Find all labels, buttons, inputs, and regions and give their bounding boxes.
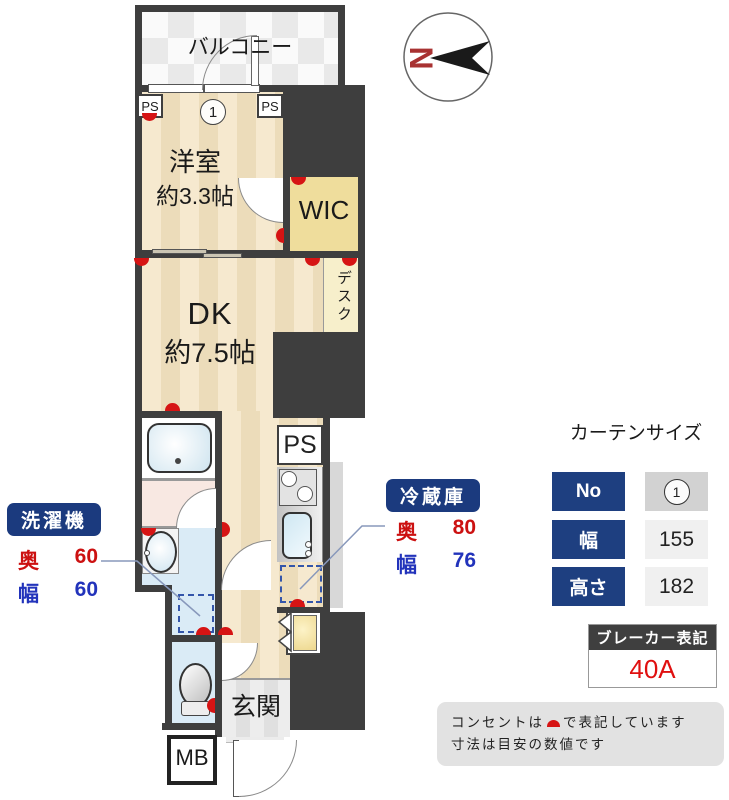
curtain-row-width-header: 幅 bbox=[552, 520, 625, 559]
washer-depth-value: 60 bbox=[75, 545, 98, 575]
washer-width-value: 60 bbox=[75, 578, 98, 608]
curtain-no-circled-value: 1 bbox=[664, 479, 690, 505]
floor-plan: PS PS PS 1 バルコニー 洋室 約3.3帖 WIC デスク DK 約7.… bbox=[0, 0, 729, 800]
compass: N bbox=[396, 10, 500, 104]
washer-badge: 洗濯機 bbox=[7, 503, 101, 536]
breaker-title: ブレーカー表記 bbox=[596, 627, 708, 648]
fridge-width: 幅76 bbox=[396, 549, 476, 579]
curtain-row-no-header: No bbox=[552, 472, 625, 511]
fridge-badge: 冷蔵庫 bbox=[386, 479, 480, 512]
fridge-depth-value: 80 bbox=[453, 516, 476, 546]
washer-depth-label: 奥 bbox=[18, 545, 39, 575]
curtain-title: カーテンサイズ bbox=[558, 424, 714, 445]
washer-connector-line bbox=[101, 561, 200, 616]
breaker-value: 40A bbox=[589, 650, 716, 689]
outlet-legend-icon bbox=[547, 720, 560, 727]
curtain-row-height-value: 182 bbox=[645, 567, 708, 606]
fridge-depth-label: 奥 bbox=[396, 516, 417, 546]
fridge-title: 冷蔵庫 bbox=[400, 482, 466, 509]
breaker-box: ブレーカー表記 40A bbox=[588, 624, 717, 688]
curtain-height-label: 高さ bbox=[569, 573, 607, 600]
washer-width-label: 幅 bbox=[18, 578, 39, 608]
breaker-header: ブレーカー表記 bbox=[589, 625, 716, 650]
fridge-connector-line bbox=[300, 526, 385, 589]
fridge-width-value: 76 bbox=[453, 549, 476, 579]
curtain-row-no-value: 1 bbox=[645, 472, 708, 511]
curtain-width-label: 幅 bbox=[579, 526, 598, 553]
bifold-door bbox=[279, 613, 291, 632]
bifold-door bbox=[279, 632, 291, 651]
notes-line1-after: で表記しています bbox=[563, 715, 687, 730]
fridge-width-label: 幅 bbox=[396, 549, 417, 579]
washer-title: 洗濯機 bbox=[21, 506, 87, 533]
washer-width: 幅60 bbox=[18, 578, 98, 608]
north-label: N bbox=[403, 46, 439, 69]
curtain-width-number: 155 bbox=[659, 528, 694, 552]
notes-line1-before: コンセントは bbox=[451, 715, 544, 730]
curtain-no-label: No bbox=[576, 481, 601, 503]
notes-line-1: コンセントはで表記しています bbox=[451, 712, 710, 734]
washer-depth: 奥60 bbox=[18, 545, 98, 575]
notes-line-2: 寸法は目安の数値です bbox=[451, 734, 710, 756]
fridge-depth: 奥80 bbox=[396, 516, 476, 546]
curtain-row-height-header: 高さ bbox=[552, 567, 625, 606]
curtain-height-number: 182 bbox=[659, 575, 694, 599]
curtain-row-width-value: 155 bbox=[645, 520, 708, 559]
notes-box: コンセントはで表記しています 寸法は目安の数値です bbox=[437, 702, 724, 766]
